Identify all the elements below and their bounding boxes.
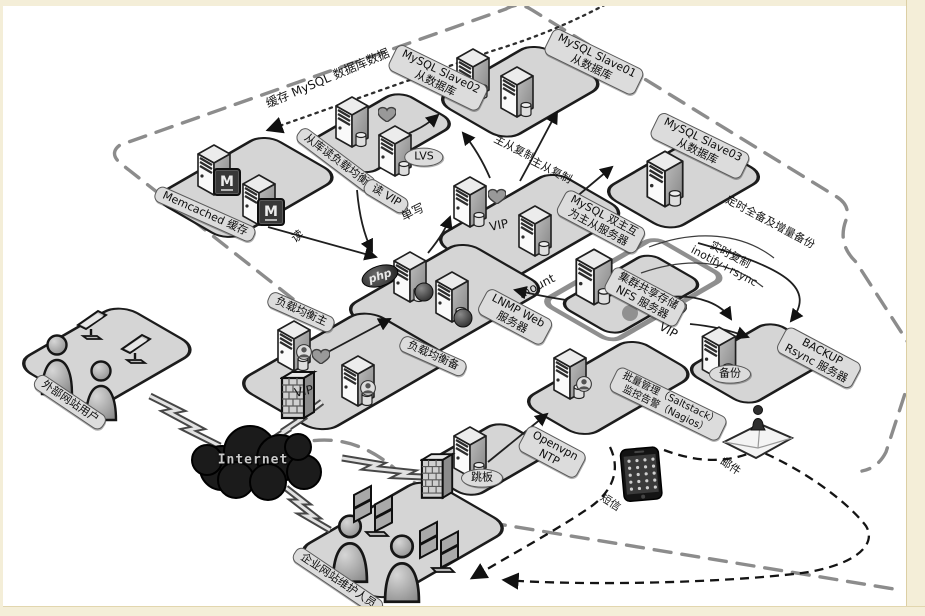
server-mysql-slave03 [647,151,682,206]
server-lvs-master [336,97,368,147]
user-face-lb-backup [361,381,376,396]
globe-icon-lnmp-1 [415,283,433,301]
memcached-logo-icon-1: M [213,168,241,196]
server-mysql-master-2 [519,206,551,256]
user-face-monitoring [577,377,592,392]
server-nfs [576,249,611,304]
label-jump-server: 跳板 [461,469,503,488]
server-mysql-slave01 [501,67,533,117]
label-backup-oval: 备份 [709,365,751,384]
bolt-internet-maintainers [286,488,330,530]
architecture-diagram: 缓存 MySQL 数据库数据 MySQL Slave02从数据库 MySQL S… [0,0,925,616]
bolt-users-internet [150,396,220,446]
user-face-lb-master [297,345,312,360]
arrow-repl-to-slave02 [463,133,490,178]
firewall-jump [422,454,452,498]
mail-envelope-icon [724,406,792,459]
label-lvs: LVS [404,148,443,167]
server-monitoring [554,349,586,399]
arrow-memcached-to-lnmp [268,227,376,257]
memcached-logo-icon-2: M [257,198,285,226]
arrow-read-vip-to-lnmp [357,190,372,251]
globe-icon-lnmp-2 [454,309,472,327]
label-internet: Internet [218,454,289,469]
platform-monitoring [520,337,697,439]
server-mysql-master-1 [454,177,486,227]
server-lvs-backup [379,126,411,176]
smartphone-icon [620,447,662,502]
